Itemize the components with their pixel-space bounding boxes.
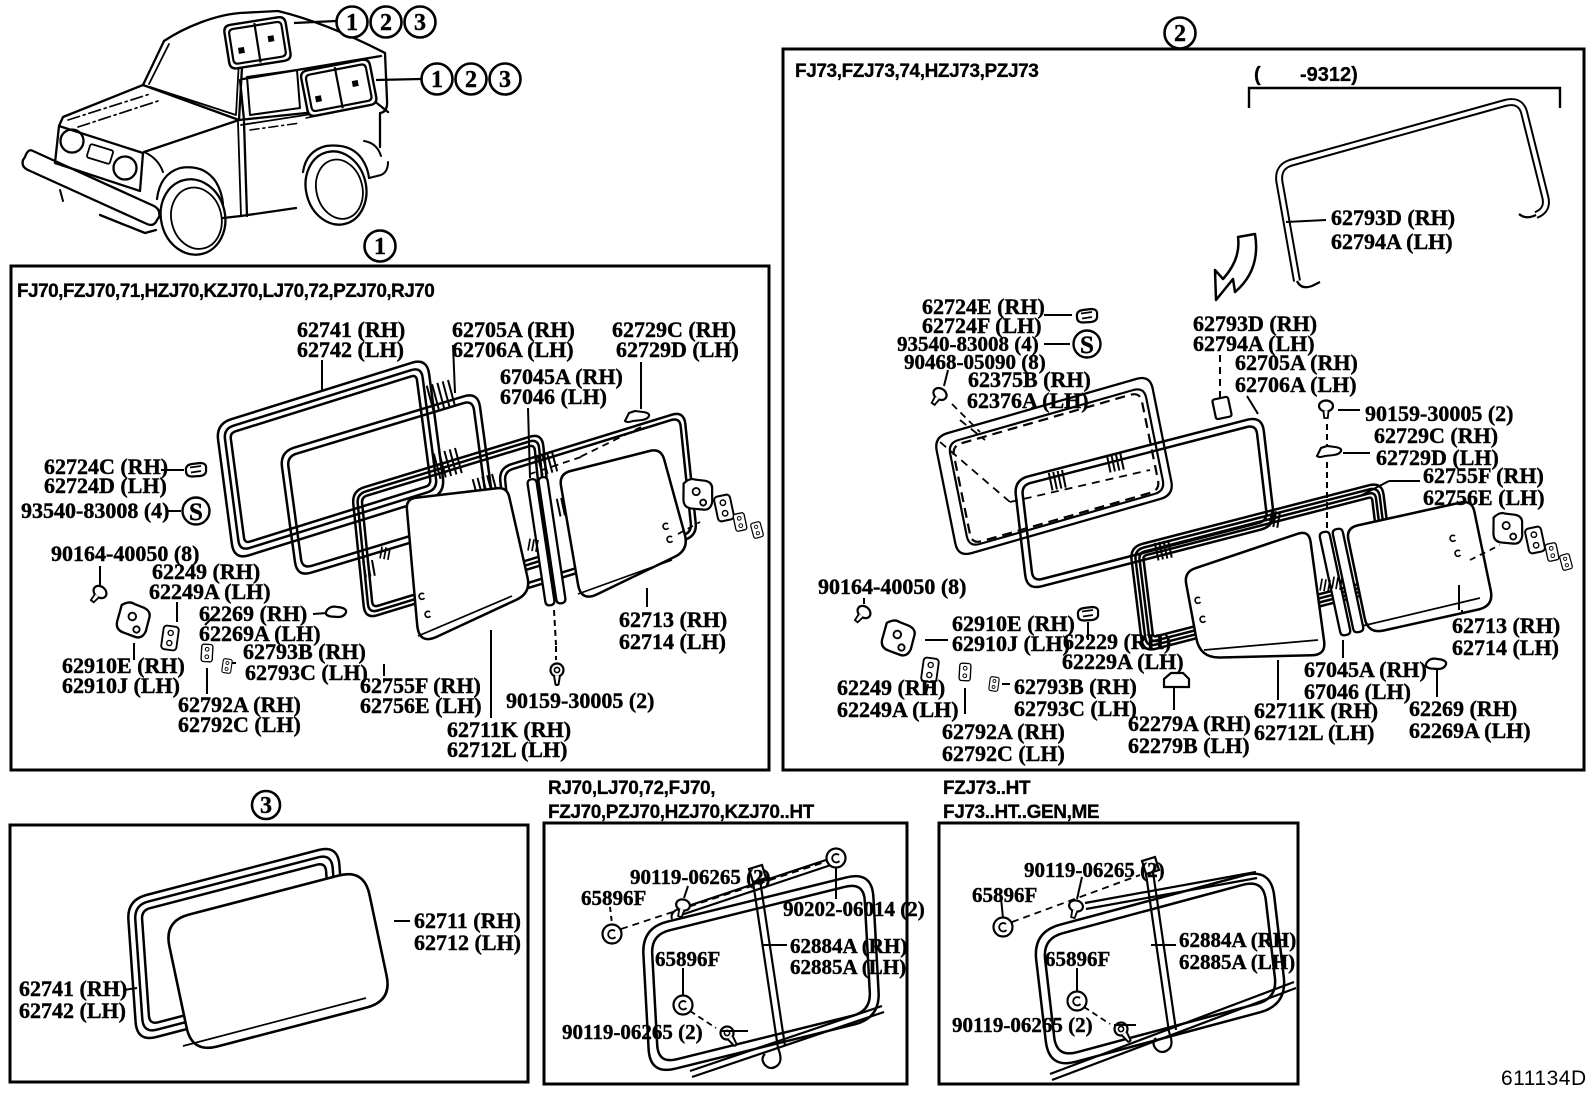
svg-text:62756E (LH): 62756E (LH) (360, 693, 482, 718)
svg-text:62794A (LH): 62794A (LH) (1331, 229, 1453, 254)
svg-text:62714 (LH): 62714 (LH) (619, 629, 726, 654)
svg-text:FZJ70,PZJ70,HZJ70,KZJ70..HT: FZJ70,PZJ70,HZJ70,KZJ70..HT (548, 802, 815, 823)
svg-text:62712L (LH): 62712L (LH) (447, 737, 567, 762)
svg-text:62376A (LH): 62376A (LH) (967, 388, 1089, 413)
svg-text:62910J (LH): 62910J (LH) (952, 631, 1070, 656)
svg-text:62793D (RH): 62793D (RH) (1331, 205, 1455, 230)
svg-text:90164-40050 (8): 90164-40050 (8) (818, 574, 966, 599)
svg-text:2: 2 (465, 67, 477, 93)
svg-text:3: 3 (499, 67, 511, 93)
svg-text:62742 (LH): 62742 (LH) (19, 998, 126, 1023)
svg-text:FZJ73..HT: FZJ73..HT (943, 778, 1031, 799)
svg-text:62792C (LH): 62792C (LH) (942, 741, 1065, 766)
svg-text:62910J (LH): 62910J (LH) (62, 673, 180, 698)
svg-text:90202-06014 (2): 90202-06014 (2) (783, 897, 925, 921)
svg-text:62712 (LH): 62712 (LH) (414, 930, 521, 955)
svg-text:62724D (LH): 62724D (LH) (44, 473, 167, 498)
svg-text:3: 3 (260, 793, 272, 819)
svg-text:2: 2 (380, 10, 392, 36)
svg-text:1: 1 (374, 234, 386, 260)
svg-text:RJ70,LJ70,72,FJ70,: RJ70,LJ70,72,FJ70, (548, 778, 715, 799)
svg-text:-9312): -9312) (1300, 64, 1358, 86)
svg-text:65896F: 65896F (581, 886, 646, 910)
svg-text:62742 (LH): 62742 (LH) (297, 337, 404, 362)
svg-text:(: ( (1254, 64, 1261, 86)
svg-text:62714 (LH): 62714 (LH) (1452, 635, 1559, 660)
svg-text:65896F: 65896F (972, 883, 1037, 907)
svg-text:62229A (LH): 62229A (LH) (1062, 649, 1184, 674)
svg-text:67046 (LH): 67046 (LH) (500, 384, 607, 409)
svg-text:62249A (LH): 62249A (LH) (837, 697, 959, 722)
svg-text:90119-06265 (2): 90119-06265 (2) (630, 865, 771, 889)
svg-text:62884A (RH): 62884A (RH) (1179, 928, 1296, 952)
svg-text:62712L (LH): 62712L (LH) (1254, 720, 1374, 745)
svg-text:FJ70,FZJ70,71,HZJ70,KZJ70,LJ70: FJ70,FZJ70,71,HZJ70,KZJ70,LJ70,72,PZJ70,… (17, 281, 434, 302)
svg-text:62729D (LH): 62729D (LH) (616, 337, 739, 362)
svg-text:62793C (LH): 62793C (LH) (1014, 696, 1137, 721)
svg-text:90119-06265 (2): 90119-06265 (2) (952, 1013, 1093, 1037)
svg-text:62706A (LH): 62706A (LH) (1235, 372, 1357, 397)
svg-text:FJ73..HT..GEN,ME: FJ73..HT..GEN,ME (943, 802, 1099, 823)
svg-text:1: 1 (431, 67, 443, 93)
svg-text:62793C (LH): 62793C (LH) (245, 660, 368, 685)
svg-text:1: 1 (346, 10, 358, 36)
svg-text:2: 2 (1174, 21, 1186, 47)
svg-text:FJ73,FZJ73,74,HZJ73,PZJ73: FJ73,FZJ73,74,HZJ73,PZJ73 (795, 61, 1038, 82)
svg-text:S: S (189, 499, 203, 526)
svg-text:90119-06265 (2): 90119-06265 (2) (562, 1020, 703, 1044)
svg-text:62756E (LH): 62756E (LH) (1423, 485, 1545, 510)
svg-text:S: S (1080, 332, 1094, 359)
svg-text:62269A (LH): 62269A (LH) (1409, 718, 1531, 743)
svg-text:90159-30005 (2): 90159-30005 (2) (506, 688, 654, 713)
svg-text:3: 3 (414, 10, 426, 36)
svg-text:65896F: 65896F (655, 947, 720, 971)
svg-text:65896F: 65896F (1045, 947, 1110, 971)
svg-text:62279B (LH): 62279B (LH) (1128, 733, 1250, 758)
svg-text:62706A (LH): 62706A (LH) (452, 337, 574, 362)
svg-text:62885A (LH): 62885A (LH) (1179, 950, 1295, 974)
svg-text:90119-06265 (2): 90119-06265 (2) (1024, 858, 1165, 882)
svg-text:93540-83008 (4): 93540-83008 (4) (21, 498, 169, 523)
svg-text:611134D: 611134D (1501, 1067, 1587, 1090)
svg-text:62885A (LH): 62885A (LH) (790, 955, 906, 979)
svg-text:62792C (LH): 62792C (LH) (178, 712, 301, 737)
